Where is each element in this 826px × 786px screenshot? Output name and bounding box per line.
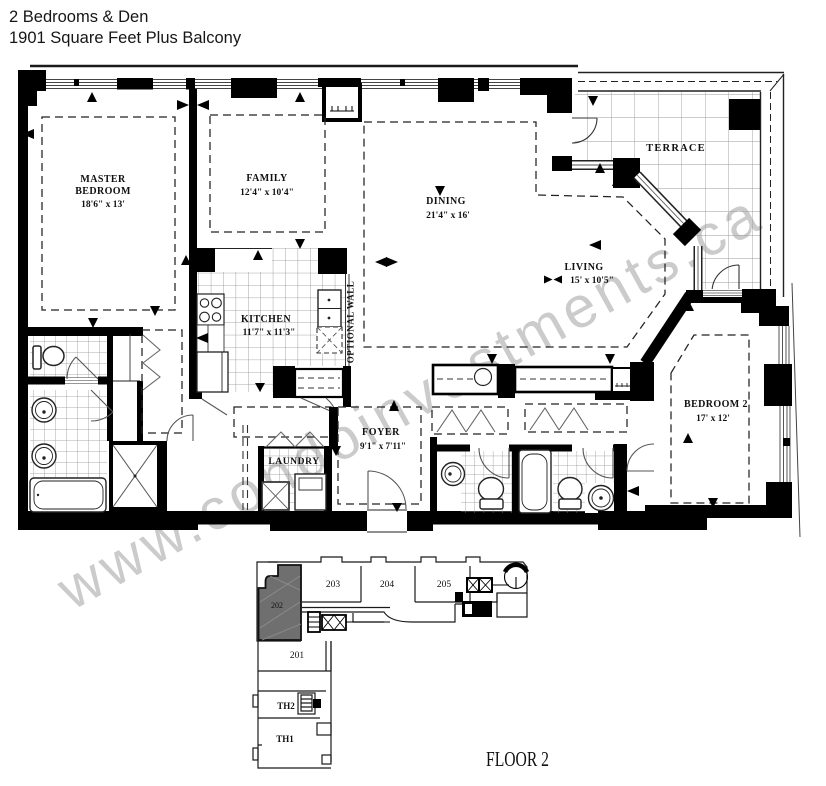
svg-text:12'4" x 10'4": 12'4" x 10'4" — [240, 188, 294, 198]
svg-text:LIVING: LIVING — [564, 262, 603, 273]
svg-text:15' x 10'5": 15' x 10'5" — [570, 276, 614, 286]
svg-text:TH1: TH1 — [276, 734, 294, 744]
svg-text:204: 204 — [380, 580, 395, 590]
svg-text:MASTER: MASTER — [80, 174, 126, 185]
svg-text:2 Bedrooms & Den: 2 Bedrooms & Den — [9, 8, 148, 26]
svg-text:205: 205 — [437, 580, 452, 590]
svg-text:17' x 12': 17' x 12' — [696, 414, 730, 424]
svg-text:OPTIONAL WALL: OPTIONAL WALL — [346, 281, 356, 364]
svg-text:www.condoinvestments.ca: www.condoinvestments.ca — [46, 182, 770, 623]
svg-text:TERRACE: TERRACE — [646, 143, 706, 154]
svg-text:LAUNDRY: LAUNDRY — [268, 457, 319, 467]
svg-text:FOYER: FOYER — [362, 427, 400, 438]
svg-text:21'4" x 16': 21'4" x 16' — [426, 211, 470, 221]
svg-text:9'1" x 7'11": 9'1" x 7'11" — [360, 441, 406, 451]
svg-text:TH2: TH2 — [277, 701, 295, 711]
svg-text:1901 Square Feet Plus Balcony: 1901 Square Feet Plus Balcony — [9, 29, 242, 47]
svg-text:203: 203 — [326, 580, 341, 590]
svg-text:11'7" x 11'3": 11'7" x 11'3" — [243, 328, 296, 338]
svg-text:201: 201 — [290, 651, 305, 661]
svg-text:202: 202 — [271, 601, 283, 610]
svg-text:KITCHEN: KITCHEN — [241, 314, 291, 325]
svg-text:18'6" x 13': 18'6" x 13' — [81, 200, 125, 210]
svg-text:DINING: DINING — [426, 196, 466, 207]
svg-text:BEDROOM 2: BEDROOM 2 — [684, 399, 748, 410]
svg-text:FAMILY: FAMILY — [246, 173, 288, 184]
svg-text:BEDROOM: BEDROOM — [75, 186, 131, 197]
svg-text:FLOOR 2: FLOOR 2 — [486, 747, 549, 771]
